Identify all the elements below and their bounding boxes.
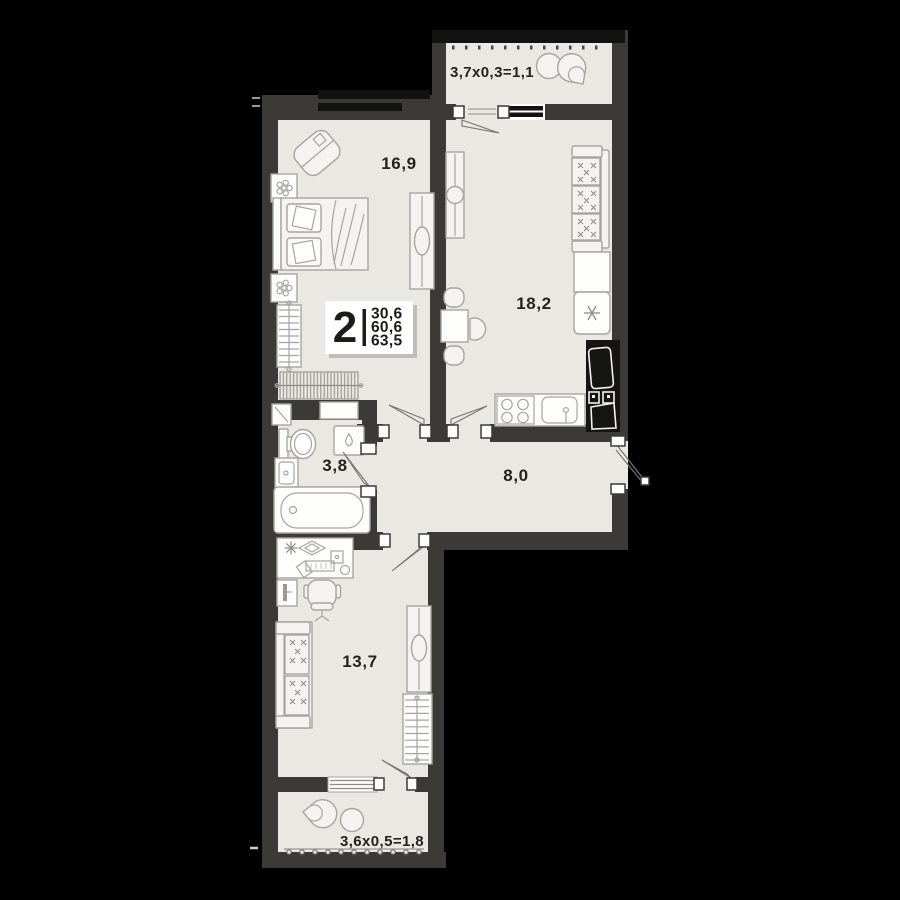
toilet — [279, 429, 316, 459]
ventilation-shaft — [586, 340, 620, 432]
dining-table — [441, 310, 468, 342]
kitchen-counter-right — [574, 252, 610, 292]
desk — [277, 538, 353, 578]
bed-headboard — [273, 198, 281, 270]
floor-plan-canvas: 16,9 18,2 3,8 8,0 13,7 3,7x0,3=1,1 3,6x0… — [0, 0, 900, 900]
bathroom-shelf — [320, 402, 358, 419]
balcony-table — [341, 809, 364, 832]
wall-balcony-divider-b — [545, 104, 612, 120]
convector-heater — [275, 372, 363, 399]
label-bedroom-area: 16,9 — [381, 154, 417, 173]
bathtub — [274, 487, 370, 533]
unit-tag-divider — [363, 309, 367, 346]
side-monitor — [277, 580, 297, 606]
wardrobe-bedroom — [410, 193, 434, 289]
label-bathroom-area: 3,8 — [322, 456, 347, 475]
bedroom-window-outer — [318, 90, 430, 99]
unit-tag[interactable]: 2 30,6 60,6 63,5 — [325, 301, 417, 358]
floor-plan: 16,9 18,2 3,8 8,0 13,7 3,7x0,3=1,1 3,6x0… — [0, 0, 900, 900]
label-hallway-area: 8,0 — [503, 466, 528, 485]
label-kitchen-area: 18,2 — [516, 294, 552, 313]
unit-tag-total-area: 63,5 — [371, 333, 402, 350]
label-bedroom2-area: 13,7 — [342, 652, 378, 671]
label-balcony-bottom-area: 3,6x0,5=1,8 — [340, 833, 424, 850]
drying-rack — [403, 694, 432, 764]
radiator-vertical — [277, 301, 301, 371]
balcony-top-outer-wall — [432, 30, 625, 43]
unit-tag-rooms: 2 — [333, 303, 357, 352]
fridge — [574, 292, 610, 334]
floor-hallway — [375, 440, 614, 534]
chair — [470, 318, 486, 340]
wardrobe-bedroom2 — [407, 606, 431, 692]
washbasin — [275, 458, 298, 488]
label-balcony-top-area: 3,7x0,3=1,1 — [450, 64, 534, 81]
wardrobe-kitchen — [446, 152, 464, 238]
wall-balcony2-divider-a — [262, 777, 328, 792]
chair — [444, 346, 464, 365]
wall-hall-bottom-b — [427, 532, 628, 550]
water-heater — [334, 426, 364, 455]
sofa-bedroom2 — [276, 622, 312, 728]
chair — [444, 288, 464, 307]
double-bed — [273, 198, 368, 270]
desk-star-decor — [285, 542, 298, 555]
wall-balcony2-divider-b — [415, 777, 444, 792]
corner-shelf — [272, 404, 291, 425]
bedroom-window-inner — [318, 103, 402, 111]
nightstand-plant — [271, 274, 297, 302]
sofa-kitchen — [572, 146, 609, 252]
